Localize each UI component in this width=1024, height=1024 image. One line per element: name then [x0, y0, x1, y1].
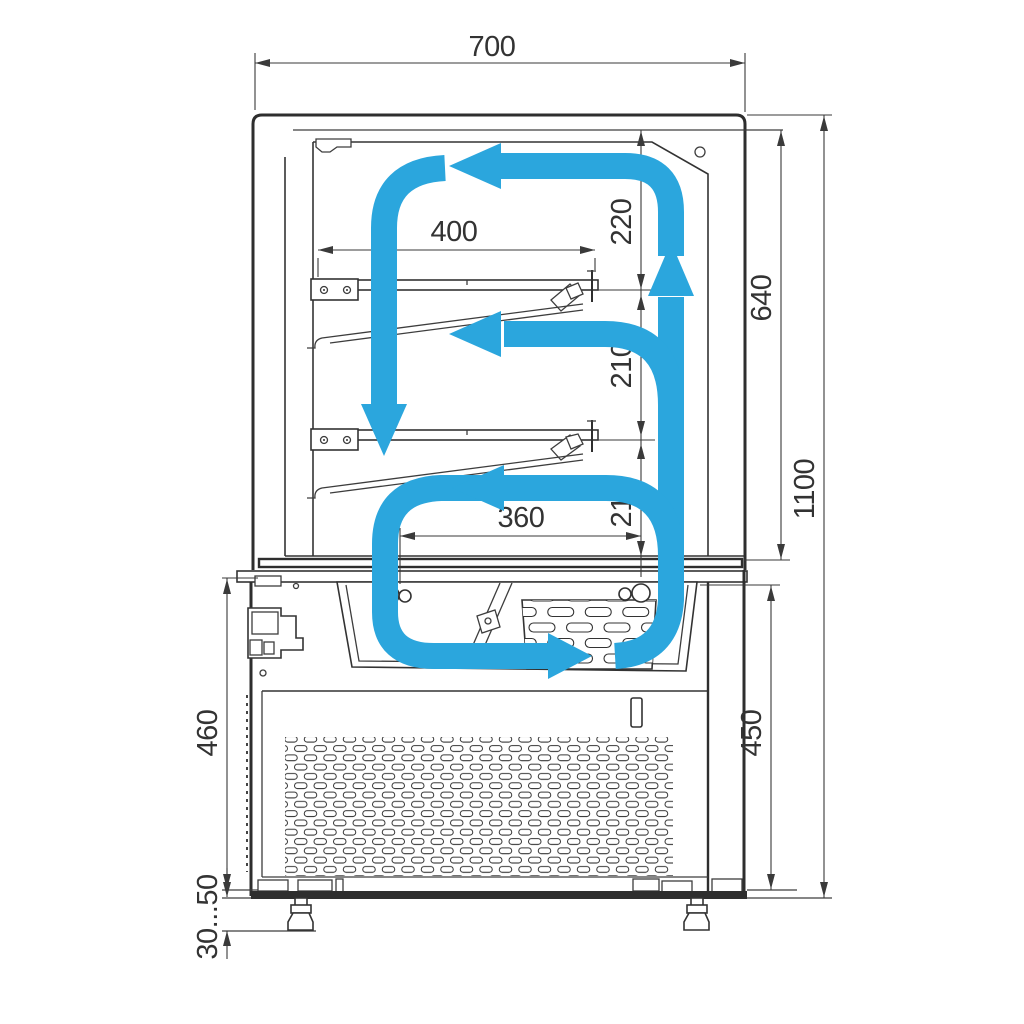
foot-left — [288, 913, 313, 930]
dim-top-clearance: 220 — [606, 199, 638, 246]
adjustable-feet — [288, 898, 709, 930]
dim-upper-shelf-depth: 400 — [431, 216, 478, 248]
dim-lower-shelf-depth: 360 — [498, 502, 545, 534]
vent-slot — [631, 698, 642, 727]
dim-lower-body-height: 460 — [192, 710, 224, 757]
airflow-top-band — [501, 166, 671, 256]
dim-foot-height: 30...50 — [192, 874, 224, 959]
dim-base-height: 450 — [736, 710, 768, 757]
airflow-arrowhead-left-low-icon — [452, 465, 504, 511]
display-case-diagram: 700 220 210 210 400 360 640 1100 — [0, 0, 1024, 1024]
corner-fitting — [695, 147, 705, 157]
top-bracket — [316, 139, 351, 152]
fan-motor-right — [632, 584, 650, 602]
dim-overall-height: 1100 — [789, 459, 821, 519]
dim-display-height: 640 — [746, 275, 778, 322]
airflow-arrowhead-up-icon — [648, 242, 694, 296]
airflow-middle-band — [504, 334, 671, 405]
base-rail — [251, 891, 747, 899]
foot-right — [684, 913, 709, 930]
airflow-arrowhead-left-top-icon — [449, 143, 501, 189]
dim-overall-width: 700 — [469, 31, 516, 63]
ventilation-grille — [285, 737, 673, 876]
technical-drawing-page: 700 220 210 210 400 360 640 1100 — [0, 0, 1024, 1024]
